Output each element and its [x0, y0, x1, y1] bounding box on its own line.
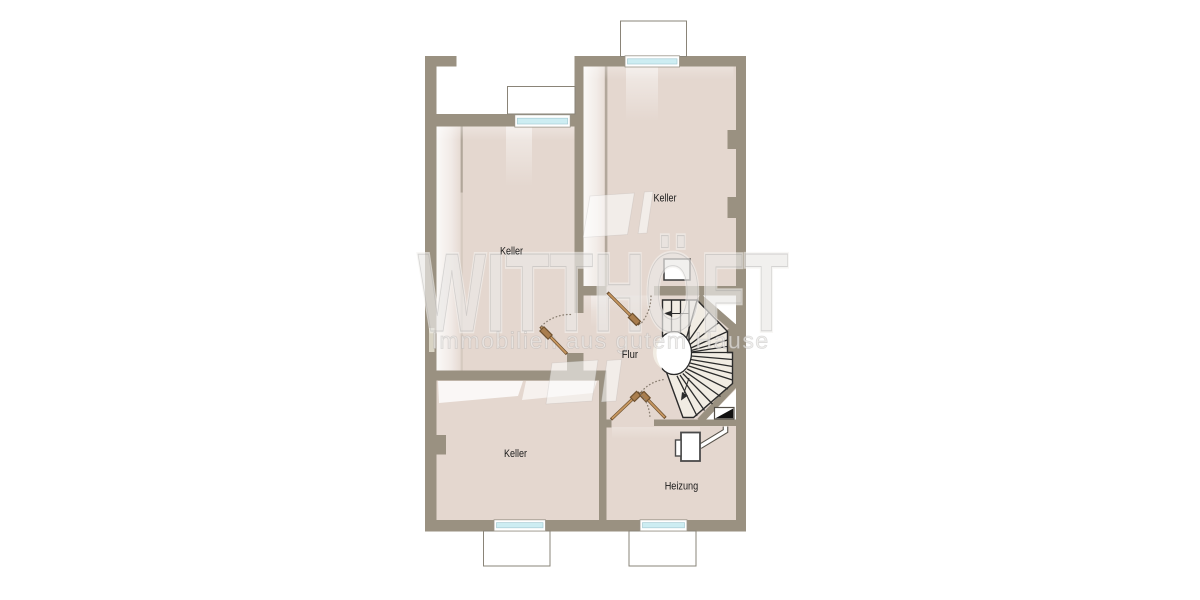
svg-text:Keller: Keller: [500, 246, 523, 258]
svg-text:Keller: Keller: [654, 193, 677, 205]
svg-text:Flur: Flur: [622, 349, 639, 361]
svg-text:Immobilien aus gutem Hause: Immobilien aus gutem Hause: [432, 328, 770, 354]
svg-text:Heizung: Heizung: [665, 481, 699, 493]
svg-text:Keller: Keller: [504, 448, 527, 460]
